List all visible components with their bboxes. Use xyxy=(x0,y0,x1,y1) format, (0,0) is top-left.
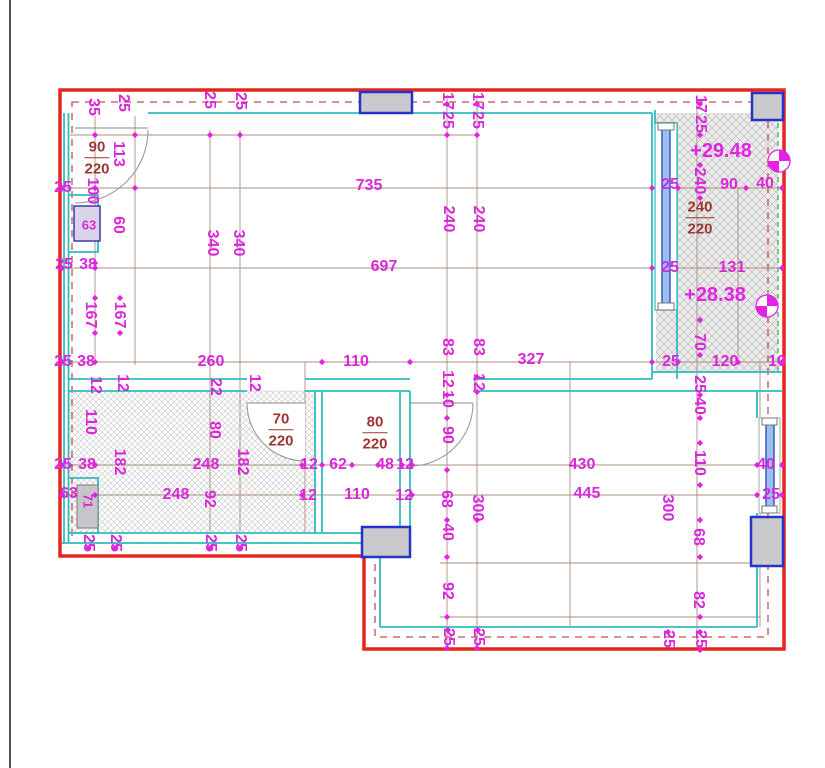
level-symbol-lower xyxy=(756,295,778,317)
shaft-box-bottom xyxy=(77,485,98,528)
window-living-balcony xyxy=(655,123,677,310)
column-top-right xyxy=(752,93,783,120)
column-bottom-middle xyxy=(362,527,410,557)
column-top-middle xyxy=(360,92,412,113)
level-symbol-upper xyxy=(768,150,790,172)
floor-plan-linework xyxy=(0,0,825,768)
floor-plan-sheet: 3525252517251725172525253825382538636371… xyxy=(0,0,825,768)
column-bottom-right xyxy=(751,517,783,566)
window-bedroom-right xyxy=(759,418,780,513)
shaft-box-top xyxy=(74,206,100,241)
